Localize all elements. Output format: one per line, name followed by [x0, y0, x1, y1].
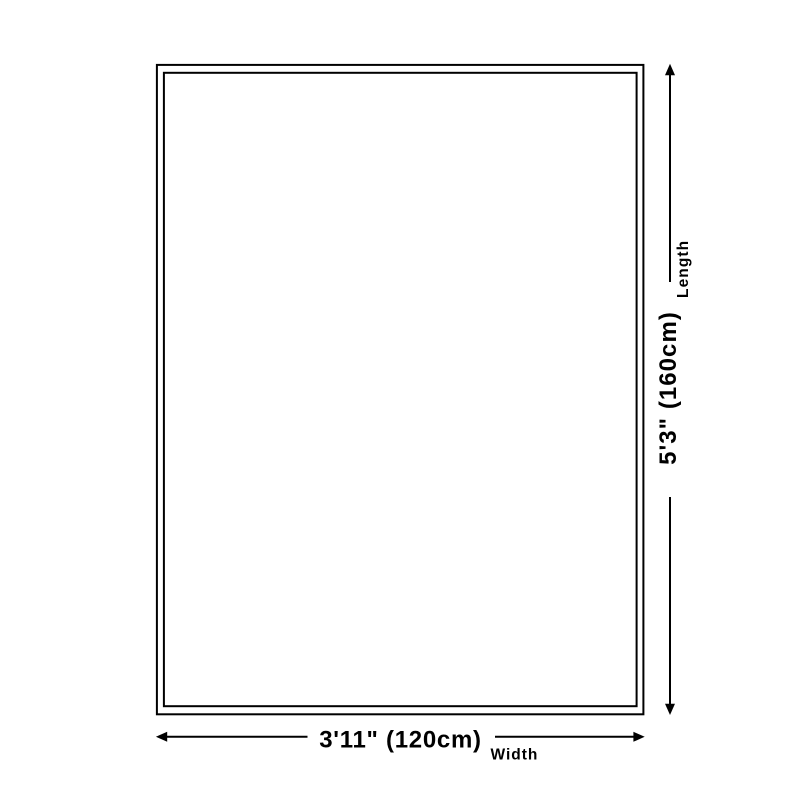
svg-text:5'3" (160cm): 5'3" (160cm): [655, 311, 682, 465]
svg-text:3'11" (120cm): 3'11" (120cm): [319, 727, 482, 754]
svg-text:Width: Width: [491, 747, 539, 764]
svg-text:Length: Length: [675, 240, 692, 298]
